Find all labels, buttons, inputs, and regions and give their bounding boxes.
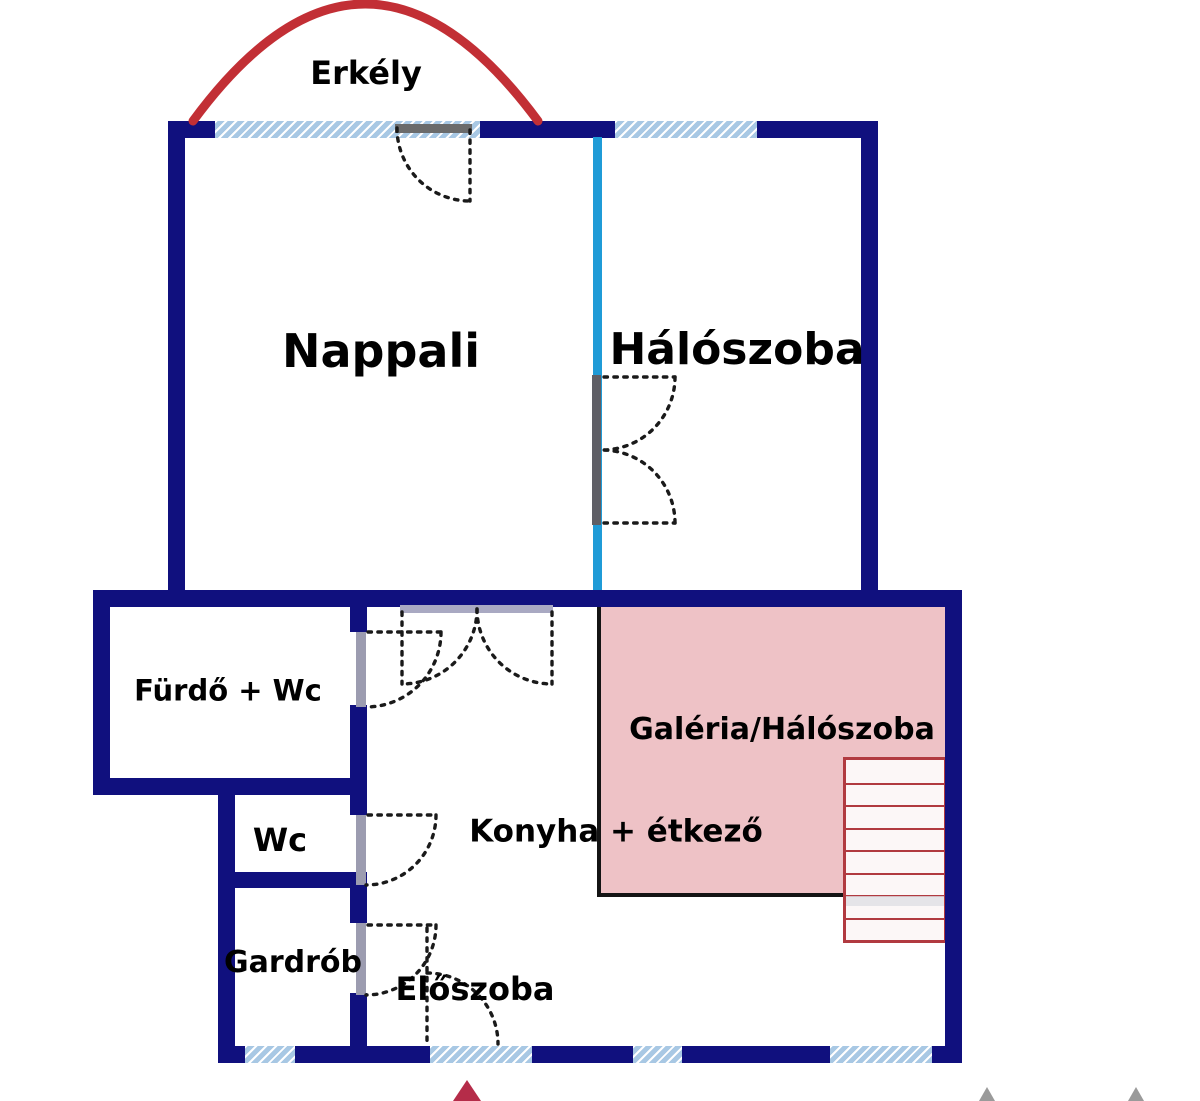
stack-right-wall-a (350, 590, 367, 632)
scale-arrow-left (979, 1087, 995, 1101)
living-kitchen-door-header (400, 605, 553, 613)
living-kitchen-double-door-leaf (477, 609, 552, 684)
stair-tread-line (846, 918, 944, 920)
gallery-window (830, 1046, 932, 1063)
bath-left-wall (93, 590, 110, 792)
wc-door-jamb (356, 815, 366, 885)
bath-door-swing-arc (366, 632, 441, 707)
stair-tread-line (846, 850, 944, 852)
lower-right-wall (945, 590, 962, 1063)
north-arrow (453, 1080, 481, 1101)
nappali-left-wall (168, 121, 185, 590)
stair-tread-line (846, 783, 944, 785)
stair-tread-line (846, 805, 944, 807)
balcony-door-swing-arc (397, 128, 470, 201)
hall-window (633, 1046, 682, 1063)
label-erkely: Erkély (310, 57, 422, 89)
stair-tread-line (846, 873, 944, 875)
haloszoba-window (615, 121, 757, 138)
bedroom-double-door-leaf (602, 450, 675, 523)
stack-right-wall-c (350, 885, 367, 923)
wc-bottom-wall (218, 872, 367, 888)
stack-right-wall-b (350, 705, 367, 815)
label-haloszoba: Hálószoba (609, 328, 864, 372)
entry-window (430, 1046, 532, 1063)
label-nappali: Nappali (282, 328, 480, 374)
stack-left-wall (218, 778, 235, 1063)
label-furdo: Fürdő + Wc (134, 677, 322, 706)
floorplan-canvas: Erkély Nappali Hálószoba Fürdő + Wc Wc G… (0, 0, 1200, 1101)
bedroom-double-door-swing-arc (602, 377, 675, 450)
label-gardrob: Gardrób (224, 948, 362, 978)
label-eloszoba: Előszoba (396, 973, 555, 1005)
label-galeria: Galéria/Hálószoba (629, 715, 935, 745)
label-konyha: Konyha + étkező (469, 817, 763, 848)
bedroom-door-jamb (592, 375, 601, 525)
gardrob-vent-window (245, 1046, 295, 1063)
stairs (843, 757, 947, 943)
stair-tread-line (846, 828, 944, 830)
stack-right-wall-d (350, 993, 367, 1046)
wc-door-swing-arc (366, 815, 436, 885)
label-wc: Wc (253, 824, 307, 856)
stair-landing-band (846, 896, 944, 906)
bath-door-jamb (356, 632, 366, 707)
balcony-door-header (395, 124, 472, 133)
living-kitchen-double-door-swing-arc (402, 609, 477, 684)
scale-arrow-right (1128, 1087, 1144, 1101)
